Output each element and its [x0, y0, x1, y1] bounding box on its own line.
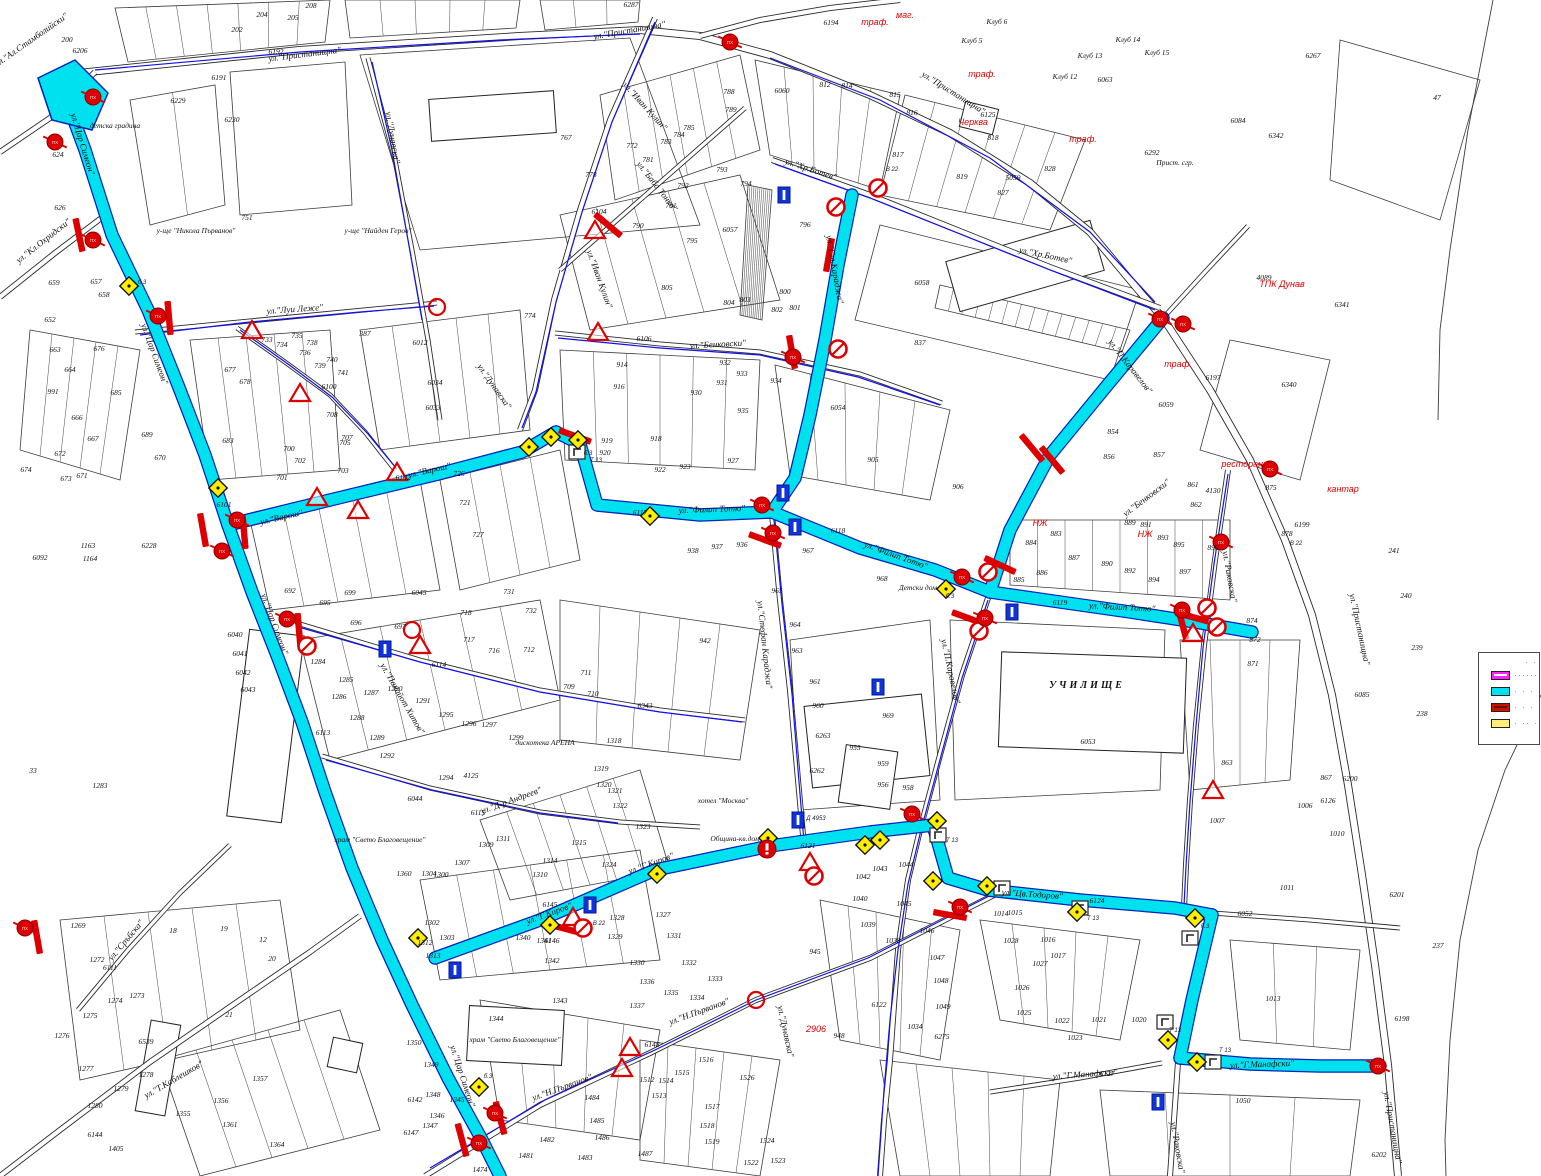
area-label: Община-кв.дом: [710, 834, 759, 843]
parcel-number: 837: [914, 338, 926, 347]
junction-box-icon: [1182, 931, 1198, 945]
parcel-number: 6012: [413, 338, 428, 347]
parcel-number: 727: [472, 530, 484, 539]
gate-valve-dot: [527, 445, 530, 448]
parcel-number: 740: [326, 355, 338, 364]
street-surface: [0, 916, 360, 1176]
parcel-boundary: [813, 74, 814, 169]
parcel-number: 875: [1265, 483, 1277, 492]
parcel-boundary: [1042, 311, 1049, 333]
parcel-number: 4130: [1206, 486, 1221, 495]
parcel-number: 1335: [664, 988, 679, 997]
parcel-boundary: [500, 607, 522, 710]
facility-label: Черква: [958, 117, 988, 127]
utility-code: б.3: [484, 1074, 493, 1080]
parcel-boundary: [876, 912, 880, 1048]
parcel-number: 6340: [1282, 380, 1297, 389]
warning-triangle-icon: [348, 501, 368, 518]
parcel-number: 732: [525, 606, 537, 615]
parcel-number: 1277: [79, 1064, 94, 1073]
parcel-number: 896: [1207, 543, 1219, 552]
parcel-number: 956: [877, 780, 889, 789]
parcel-number: 6142: [408, 1095, 423, 1104]
parcel-number: 699: [344, 588, 356, 597]
building-footprint: [838, 745, 898, 810]
parcel-number: 1025: [1017, 1008, 1032, 1017]
area-label: Клуб 15: [1144, 48, 1170, 57]
parcel-number: 6230: [225, 115, 240, 124]
parcel-number: 948: [833, 1031, 845, 1040]
street-name-label: ул."Иван Кулин": [620, 79, 669, 132]
parcel-number: 6228: [142, 541, 157, 550]
parcel-number: 205: [287, 13, 299, 22]
parcel-number: 1007: [1210, 816, 1225, 825]
parcel-boundary: [784, 67, 792, 162]
street-name-label: ул."Баба Тонка": [634, 158, 680, 213]
parcel-boundary: [500, 465, 520, 575]
parcel-number: 701: [276, 473, 287, 482]
facility-label: маг.: [896, 10, 914, 20]
area-label: Клуб 12: [1052, 72, 1078, 81]
fire-hydrant-label: ПХ: [52, 140, 58, 145]
parcel-number: 6040: [228, 630, 243, 639]
parcel-number: 955: [849, 743, 861, 752]
parcel-boundary: [1082, 320, 1089, 342]
parcel-number: 1361: [223, 1120, 238, 1129]
parcel-number: 963: [791, 646, 803, 655]
parcel-number: 1324: [602, 860, 617, 869]
parcel-boundary: [297, 1, 299, 45]
parcel-number: 47: [1433, 93, 1441, 102]
parcel-number: 788: [723, 87, 735, 96]
area-label: УЧИЛИЩЕ: [1049, 680, 1125, 691]
cadastral-map: ПХПХПХПХПХПХПХПХПХПХПХПХПХПХПХПХПХПХПХПХ…: [0, 0, 1541, 1176]
parcel-boundary: [836, 81, 842, 176]
parcel-number: 1283: [93, 781, 108, 790]
parcel-number: 1484: [585, 1093, 600, 1102]
parcel-number: 6063: [1098, 75, 1113, 84]
parcel-number: 6191: [212, 73, 227, 82]
fire-hydrant-label: ПХ: [155, 314, 161, 319]
parcel-number: 1321: [608, 786, 623, 795]
parcel-number: 816: [906, 108, 918, 117]
parcel-boundary: [952, 1068, 960, 1176]
parcel-boundary: [632, 612, 640, 748]
parcel-number: 897: [1179, 567, 1191, 576]
gate-valve-dot: [477, 1085, 480, 1088]
parcel-number: 1319: [594, 764, 609, 773]
parcel-number: 801: [789, 303, 800, 312]
parcel-number: 6263: [816, 731, 831, 740]
parcel-number: 1013: [1266, 994, 1281, 1003]
parcel-number: 33: [28, 766, 37, 775]
legend-item-service-pipe: . .. .: [1491, 715, 1537, 731]
parcel-number: 778: [585, 170, 597, 179]
parcel-boundary: [596, 606, 600, 744]
fire-hydrant-label: ПХ: [770, 531, 776, 536]
parcel-number: 819: [956, 172, 968, 181]
parcel-number: 1280: [88, 1101, 103, 1110]
parcel-boundary: [902, 401, 915, 495]
parcel-number: 6146: [545, 936, 560, 945]
cadastral-block: [1230, 940, 1360, 1050]
parcel-number: 1514: [659, 1076, 674, 1085]
water-main-casing: [990, 318, 1163, 592]
junction-box-icon: [1157, 1015, 1173, 1029]
parcel-boundary: [573, 0, 576, 27]
area-label: Клуб 5: [961, 36, 983, 45]
parcel-boundary: [1072, 932, 1076, 1032]
parcel-number: 6147: [404, 1128, 419, 1137]
building-footprint: [327, 1037, 363, 1073]
facility-label: кантар: [1327, 484, 1359, 494]
fire-hydrant-label: ПХ: [759, 503, 765, 508]
parcel-boundary: [1095, 324, 1103, 346]
parcel-number: 710: [587, 689, 599, 698]
parcel-number: 695: [319, 598, 331, 607]
parcel-number: 708: [326, 410, 338, 419]
warning-triangle-icon: [588, 323, 608, 340]
parcel-boundary: [845, 383, 846, 485]
area-label: храм "Свето Благовещение": [333, 835, 426, 844]
parcel-number: 890: [1101, 559, 1113, 568]
planned-pipe-swatch: [1491, 671, 1510, 680]
parcel-number: 1049: [936, 1002, 951, 1011]
parcel-number: 804: [723, 298, 735, 307]
parcel-number: 678: [239, 377, 251, 386]
parcel-number: 1034: [908, 1022, 923, 1031]
parcel-number: 1356: [214, 1096, 229, 1105]
ring-marker-icon: [429, 299, 445, 315]
utility-code: Т 13: [590, 458, 603, 464]
parcel-number: 968: [876, 574, 888, 583]
parcel-number: 731: [503, 587, 514, 596]
facility-label: 2906: [805, 1024, 826, 1034]
parcel-number: 936: [736, 540, 748, 549]
parcel-number: 1022: [1055, 1016, 1070, 1025]
parcel-number: 6148: [645, 1040, 660, 1049]
parcel-number: 893: [1157, 533, 1169, 542]
parcel-number: 689: [141, 430, 153, 439]
parcel-boundary: [688, 1048, 696, 1166]
parcel-number: 918: [650, 434, 662, 443]
parcel-number: 872: [1249, 635, 1261, 644]
parcel-number: 1523: [771, 1156, 786, 1165]
street-name-label: ул."Бенковски": [1120, 477, 1172, 519]
parcel-number: 1297: [482, 720, 497, 729]
fire-hydrant-label: ПХ: [1218, 540, 1224, 545]
parcel-number: 1327: [656, 910, 671, 919]
gate-valve-dot: [878, 838, 881, 841]
hydrant-sign-glyph: [877, 682, 880, 692]
parcel-boundary: [1029, 308, 1036, 331]
parcel-number: 6201: [1390, 890, 1405, 899]
parcel-boundary: [603, 855, 623, 963]
parcel-number: 961: [809, 677, 820, 686]
parcel-number: 736: [299, 348, 311, 357]
parcel-number: 1275: [83, 1011, 98, 1020]
parcel-number: 1040: [853, 894, 868, 903]
parcel-number: 21: [225, 1010, 233, 1019]
parcel-number: 1312: [418, 938, 433, 947]
parcel-number: 892: [1124, 566, 1136, 575]
cadastral-block: [230, 62, 352, 215]
gate-valve-dot: [648, 514, 651, 517]
parcel-boundary: [1020, 1076, 1024, 1176]
gate-valve-dot: [1075, 910, 1078, 913]
parcel-number: 237: [1432, 941, 1444, 950]
parcel-number: 6229: [171, 96, 186, 105]
parcel-number: 1332: [682, 958, 697, 967]
parcel-number: 959: [877, 759, 889, 768]
parcel-number: 1274: [108, 996, 123, 1005]
parcel-number: 1284: [311, 657, 326, 666]
parcel-number: 667: [87, 434, 99, 443]
parcel-number: 857: [1153, 450, 1165, 459]
parcel-boundary: [100, 346, 118, 474]
parcel-number: 6198: [1395, 1014, 1410, 1023]
street-name-label: ул."Дунавска": [383, 110, 402, 165]
parcel-number: 666: [71, 413, 83, 422]
area-label: Клуб 6: [986, 17, 1008, 26]
parcel-number: 803: [739, 295, 751, 304]
parcel-number: 20: [268, 954, 276, 963]
parcel-number: 6113: [316, 728, 331, 737]
parcel-number: 239: [1411, 643, 1423, 652]
parcel-number: 802: [771, 305, 783, 314]
parcel-number: 934: [770, 376, 782, 385]
gate-valve-dot: [863, 843, 866, 846]
parcel-number: 683: [222, 436, 234, 445]
parcel-number: 6206: [73, 46, 88, 55]
parcel-number: 1342: [545, 956, 560, 965]
cadastral-block: [560, 600, 760, 760]
parcel-number: 677: [224, 365, 236, 374]
parcel-boundary: [1265, 640, 1270, 783]
parcel-boundary: [1313, 947, 1316, 1047]
street-name-label: ул."Раковска": [1220, 549, 1239, 603]
parcel-number: 696: [350, 618, 362, 627]
parcel-number: 6106: [637, 334, 652, 343]
hydrant-sign-glyph: [794, 522, 797, 532]
parcel-number: 1048: [934, 976, 949, 985]
hydrant-sign-glyph: [1011, 607, 1014, 617]
parcel-number: 942: [699, 636, 711, 645]
parcel-number: 1524: [760, 1136, 775, 1145]
parcel-number: 1294: [439, 773, 454, 782]
parcel-number: 817: [892, 150, 904, 159]
parcel-number: 818: [987, 133, 999, 142]
parcel-number: 1526: [740, 1073, 755, 1082]
parcel-boundary: [507, 812, 537, 895]
parcel-number: 815: [889, 90, 901, 99]
parcel-number: 1276: [55, 1031, 70, 1040]
field-boundary: [1438, 0, 1493, 420]
gate-valve-dot: [1193, 916, 1196, 919]
cadastral-block: [345, 0, 520, 38]
parcel-number: 894: [1148, 575, 1160, 584]
parcel-number: 1347: [423, 1121, 438, 1130]
street-casing: [78, 845, 230, 1010]
parcel-number: 624: [52, 150, 64, 159]
parcel-number: 969: [882, 711, 894, 720]
parcel-boundary: [1290, 1098, 1295, 1176]
parcel-boundary: [493, 870, 513, 973]
parcel-number: 6292: [1145, 148, 1160, 157]
parcel-number: 208: [305, 1, 317, 10]
parcel-number: 1163: [81, 541, 96, 550]
parcel-number: 783: [660, 137, 672, 146]
parcel-boundary: [753, 188, 762, 318]
parcel-number: 887: [1068, 553, 1080, 562]
parcel-number: 920: [599, 448, 611, 457]
parcel-number: 931: [716, 378, 727, 387]
parcel-number: 6044: [408, 794, 423, 803]
parcel-number: 871: [1247, 659, 1258, 668]
parcel-number: 6054: [831, 403, 846, 412]
street-name-label: ул."Иван Кулин": [584, 248, 615, 310]
parcel-number: 1287: [364, 688, 379, 697]
parcel-boundary: [176, 6, 184, 57]
fire-hydrant-label: ПХ: [1375, 1064, 1381, 1069]
parcel-number: 1011: [1280, 883, 1294, 892]
parcel-number: 6202: [1372, 1150, 1387, 1159]
fire-hydrant-label: ПХ: [1179, 608, 1185, 613]
fire-hydrant-label: ПХ: [219, 549, 225, 554]
parcel-number: 717: [463, 635, 475, 644]
gate-valve-dot: [216, 486, 219, 489]
parcel-number: 12: [259, 935, 267, 944]
fire-hydrant-label: ПХ: [90, 95, 96, 100]
parcel-number: 1323: [636, 822, 651, 831]
parcel-boundary: [392, 326, 410, 446]
parcel-number: 4125: [464, 771, 479, 780]
parcel-number: 6045: [412, 588, 427, 597]
parcel-number: 878: [1281, 529, 1293, 538]
parcel-number: 790: [632, 221, 644, 230]
area-label: хотел "Москва": [697, 796, 749, 805]
utility-code: В 22: [593, 921, 606, 927]
label-layer: 2002022042052086206619261916229623075162…: [0, 0, 1444, 1174]
parcel-number: 6539: [139, 1037, 154, 1046]
hydrant-sign-glyph: [782, 488, 785, 498]
hydrant-sign-glyph: [797, 815, 800, 825]
street-surface: [1163, 226, 1248, 318]
area-label: Прист. сгр.: [1155, 158, 1194, 167]
parcel-boundary: [755, 188, 764, 318]
parcel-number: 6343: [638, 701, 653, 710]
parcel-number: 1485: [590, 1116, 605, 1125]
utility-code: Т 13: [1169, 1028, 1182, 1034]
parcel-number: 6267: [1306, 51, 1321, 60]
parcel-number: 964: [789, 620, 801, 629]
parcel-number: 1513: [652, 1091, 667, 1100]
parcel-number: 1310: [533, 870, 548, 879]
parcel-number: 1474: [473, 1165, 488, 1174]
parcel-number: 712: [523, 645, 535, 654]
parcel-number: 967: [802, 546, 814, 555]
hydrant-sign-glyph: [783, 190, 786, 200]
gate-valve-dot: [985, 884, 988, 887]
parcel-number: 1045: [897, 899, 912, 908]
parcel-number: 1311: [496, 834, 510, 843]
facility-label: траф.: [968, 69, 995, 79]
parcel-number: 1487: [638, 1149, 653, 1158]
parcel-number: 1348: [426, 1090, 441, 1099]
parcel-boundary: [988, 1072, 990, 1176]
parcel-number: 6034: [428, 378, 443, 387]
parcel-number: 1279: [114, 1084, 129, 1093]
parcel-number: 700: [283, 444, 295, 453]
parcel-number: 1296: [462, 719, 477, 728]
parcel-number: 863: [1221, 758, 1233, 767]
parcel-number: 6342: [1269, 131, 1284, 140]
parcel-number: 1023: [1068, 1033, 1083, 1042]
parcel-boundary: [218, 338, 236, 478]
parcel-number: 6122: [872, 1000, 887, 1009]
cadastral-block: [360, 38, 700, 250]
fire-hydrant-label: ПХ: [1180, 322, 1186, 327]
street-name-label: ул."Дунавска": [475, 361, 514, 411]
parcel-number: 1291: [416, 696, 431, 705]
parcel-number: 1278: [139, 1070, 154, 1079]
parcel-number: 772: [626, 141, 638, 150]
parcel-number: 812: [819, 80, 831, 89]
parcel-boundary: [457, 875, 477, 977]
street-casing: [322, 756, 700, 827]
parcel-number: 1292: [380, 751, 395, 760]
parcel-number: 204: [256, 10, 268, 19]
gate-valve-dot: [935, 819, 938, 822]
parcel-boundary: [948, 288, 953, 311]
utility-code: б.3: [946, 594, 955, 600]
parcel-number: 19: [220, 924, 228, 933]
parcel-boundary: [664, 1044, 668, 1163]
gate-valve-dot: [127, 284, 130, 287]
parcel-number: 1303: [440, 933, 455, 942]
parcel-number: 1517: [705, 1102, 720, 1111]
parcel-number: 6092: [33, 553, 48, 562]
fire-hydrant-label: ПХ: [1157, 317, 1163, 322]
parcel-number: 1050: [1236, 1096, 1251, 1105]
parcel-number: 1515: [675, 1068, 690, 1077]
parcel-number: 1349: [424, 1060, 439, 1069]
map-canvas[interactable]: ПХПХПХПХПХПХПХПХПХПХПХПХПХПХПХПХПХПХПХПХ…: [0, 0, 1541, 1176]
gate-valve-dot: [931, 879, 934, 882]
parcel-number: 1010: [1330, 829, 1345, 838]
street-name-label: ул."П.Каравелов": [939, 637, 963, 705]
gate-valve-dot: [944, 587, 947, 590]
parcel-number: 1313: [426, 951, 441, 960]
parcel-number: 1044: [899, 860, 914, 869]
utility-code: Т 13: [1087, 916, 1100, 922]
parcel-number: 862: [1190, 500, 1202, 509]
cadastral-block: [360, 310, 530, 450]
main-pipe-swatch: [1491, 687, 1510, 696]
building-footprint: [429, 91, 557, 142]
parcel-number: 1028: [1004, 936, 1019, 945]
fire-hydrant-label: ПХ: [957, 905, 963, 910]
facility-label: ТПК Дунав: [1259, 279, 1305, 289]
parcel-number: 733: [261, 335, 273, 344]
street-name-label: ул."Кл.Охридски": [13, 216, 72, 266]
parcel-number: 1039: [861, 920, 876, 929]
parcel-number: 885: [1013, 575, 1025, 584]
parcel-boundary: [593, 352, 596, 462]
area-label: детска градина: [90, 121, 140, 130]
parcel-number: 805: [661, 283, 673, 292]
parcel-number: 895: [1173, 540, 1185, 549]
